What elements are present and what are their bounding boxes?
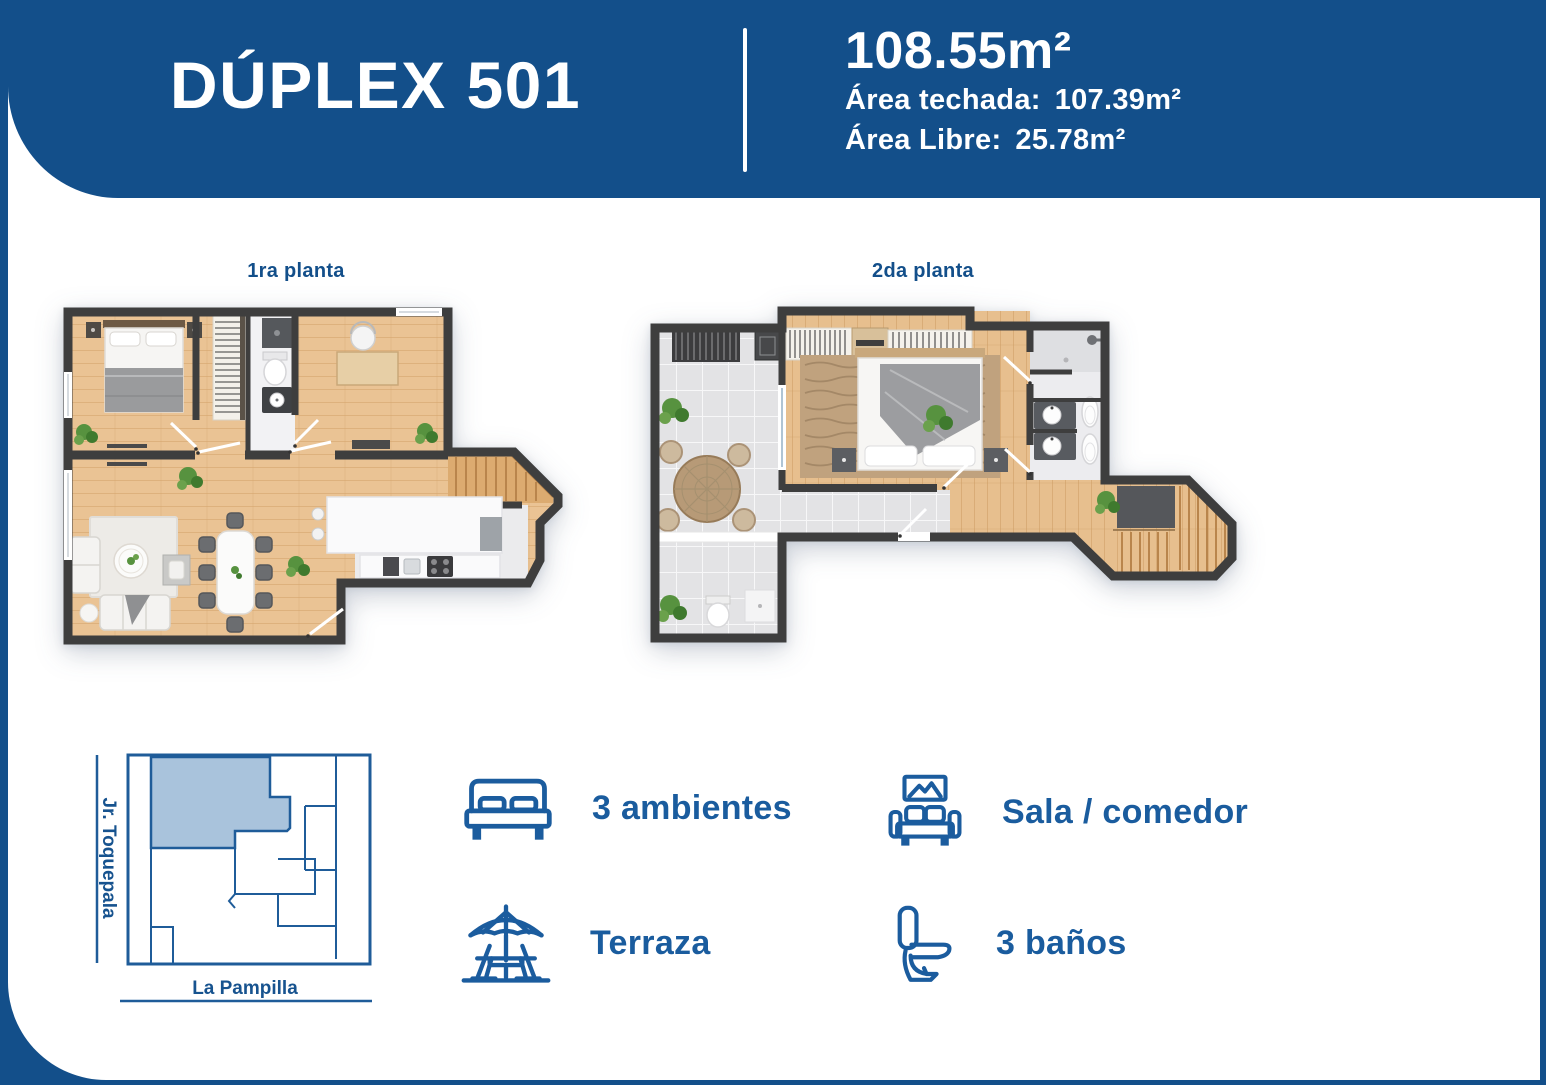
free-area-value: 25.78m²: [1015, 120, 1125, 160]
roofed-area-value: 107.39m²: [1055, 80, 1182, 120]
feature-living: Sala / comedor: [884, 770, 1248, 854]
header-banner: DÚPLEX 501 108.55m² Área techada: 107.39…: [8, 0, 1546, 198]
feature-bathrooms-label: 3 baños: [996, 924, 1127, 963]
feature-terrace: Terraza: [458, 900, 711, 986]
flyer-page: DÚPLEX 501 108.55m² Área techada: 107.39…: [0, 0, 1546, 1085]
feature-terrace-label: Terraza: [590, 924, 711, 963]
fp2-terrace-door: [778, 385, 786, 470]
street-left-label: Jr. Toquepala: [98, 797, 119, 919]
terrace-icon: [458, 900, 554, 986]
roofed-area-line: Área techada: 107.39m²: [845, 80, 1181, 120]
bed-icon: [460, 772, 556, 844]
feature-rooms-label: 3 ambientes: [592, 789, 792, 828]
fp1-bathroom: [250, 316, 295, 452]
fp2-bedroom: [786, 328, 1008, 478]
street-bottom-label: La Pampilla: [192, 978, 298, 999]
feature-rooms: 3 ambientes: [460, 772, 792, 844]
header-divider: [743, 28, 747, 172]
first-floor-label: 1ra planta: [226, 260, 366, 283]
free-area-line: Área Libre: 25.78m²: [845, 120, 1181, 160]
feature-living-label: Sala / comedor: [1002, 793, 1248, 832]
floorplan-first-floor: [55, 300, 630, 655]
floorplan-second-floor: [645, 300, 1255, 655]
second-floor-label: 2da planta: [853, 260, 993, 283]
fp1-closet: [213, 316, 245, 420]
total-area: 108.55m²: [845, 22, 1181, 80]
location-map: Jr. Toquepala La Pampilla: [88, 748, 388, 1018]
frame-bottom: [0, 1080, 1546, 1085]
sofa-icon: [884, 770, 966, 854]
free-area-label: Área Libre:: [845, 120, 1001, 160]
frame-left: [0, 0, 8, 1085]
toilet-icon: [888, 902, 960, 984]
page-title: DÚPLEX 501: [8, 0, 743, 198]
area-summary: 108.55m² Área techada: 107.39m² Área Lib…: [845, 22, 1181, 160]
roofed-area-label: Área techada:: [845, 80, 1041, 120]
feature-bathrooms: 3 baños: [888, 902, 1127, 984]
